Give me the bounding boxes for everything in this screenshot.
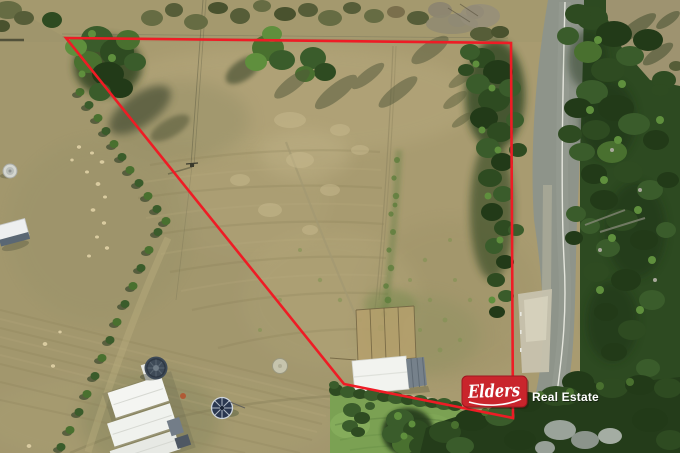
elders-brand-text: Elders: [467, 380, 521, 403]
elders-suffix-text: Real Estate: [532, 390, 599, 404]
aerial-property-photo: Elders Real Estate Real Estate: [0, 0, 680, 453]
round-pad: [273, 359, 288, 374]
mower-item: [180, 393, 186, 399]
aerial-scene: Elders Real Estate Real Estate: [0, 0, 680, 453]
path-glimpse: [544, 420, 576, 440]
